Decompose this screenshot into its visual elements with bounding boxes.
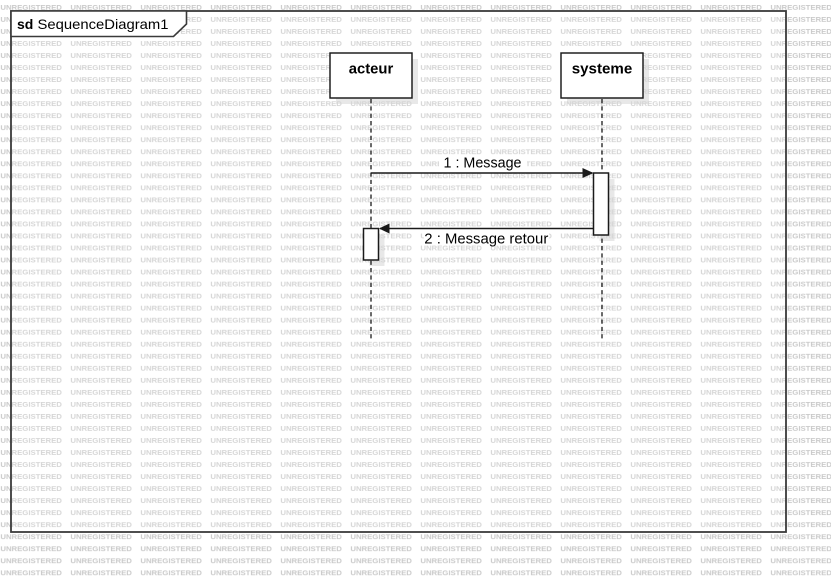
svg-text:acteur: acteur — [349, 61, 394, 77]
svg-text:systeme: systeme — [572, 61, 633, 77]
svg-text:2 : Message retour: 2 : Message retour — [424, 232, 548, 248]
svg-text:sdSequenceDiagram1: sdSequenceDiagram1 — [17, 16, 169, 32]
svg-text:1 : Message: 1 : Message — [444, 156, 522, 172]
